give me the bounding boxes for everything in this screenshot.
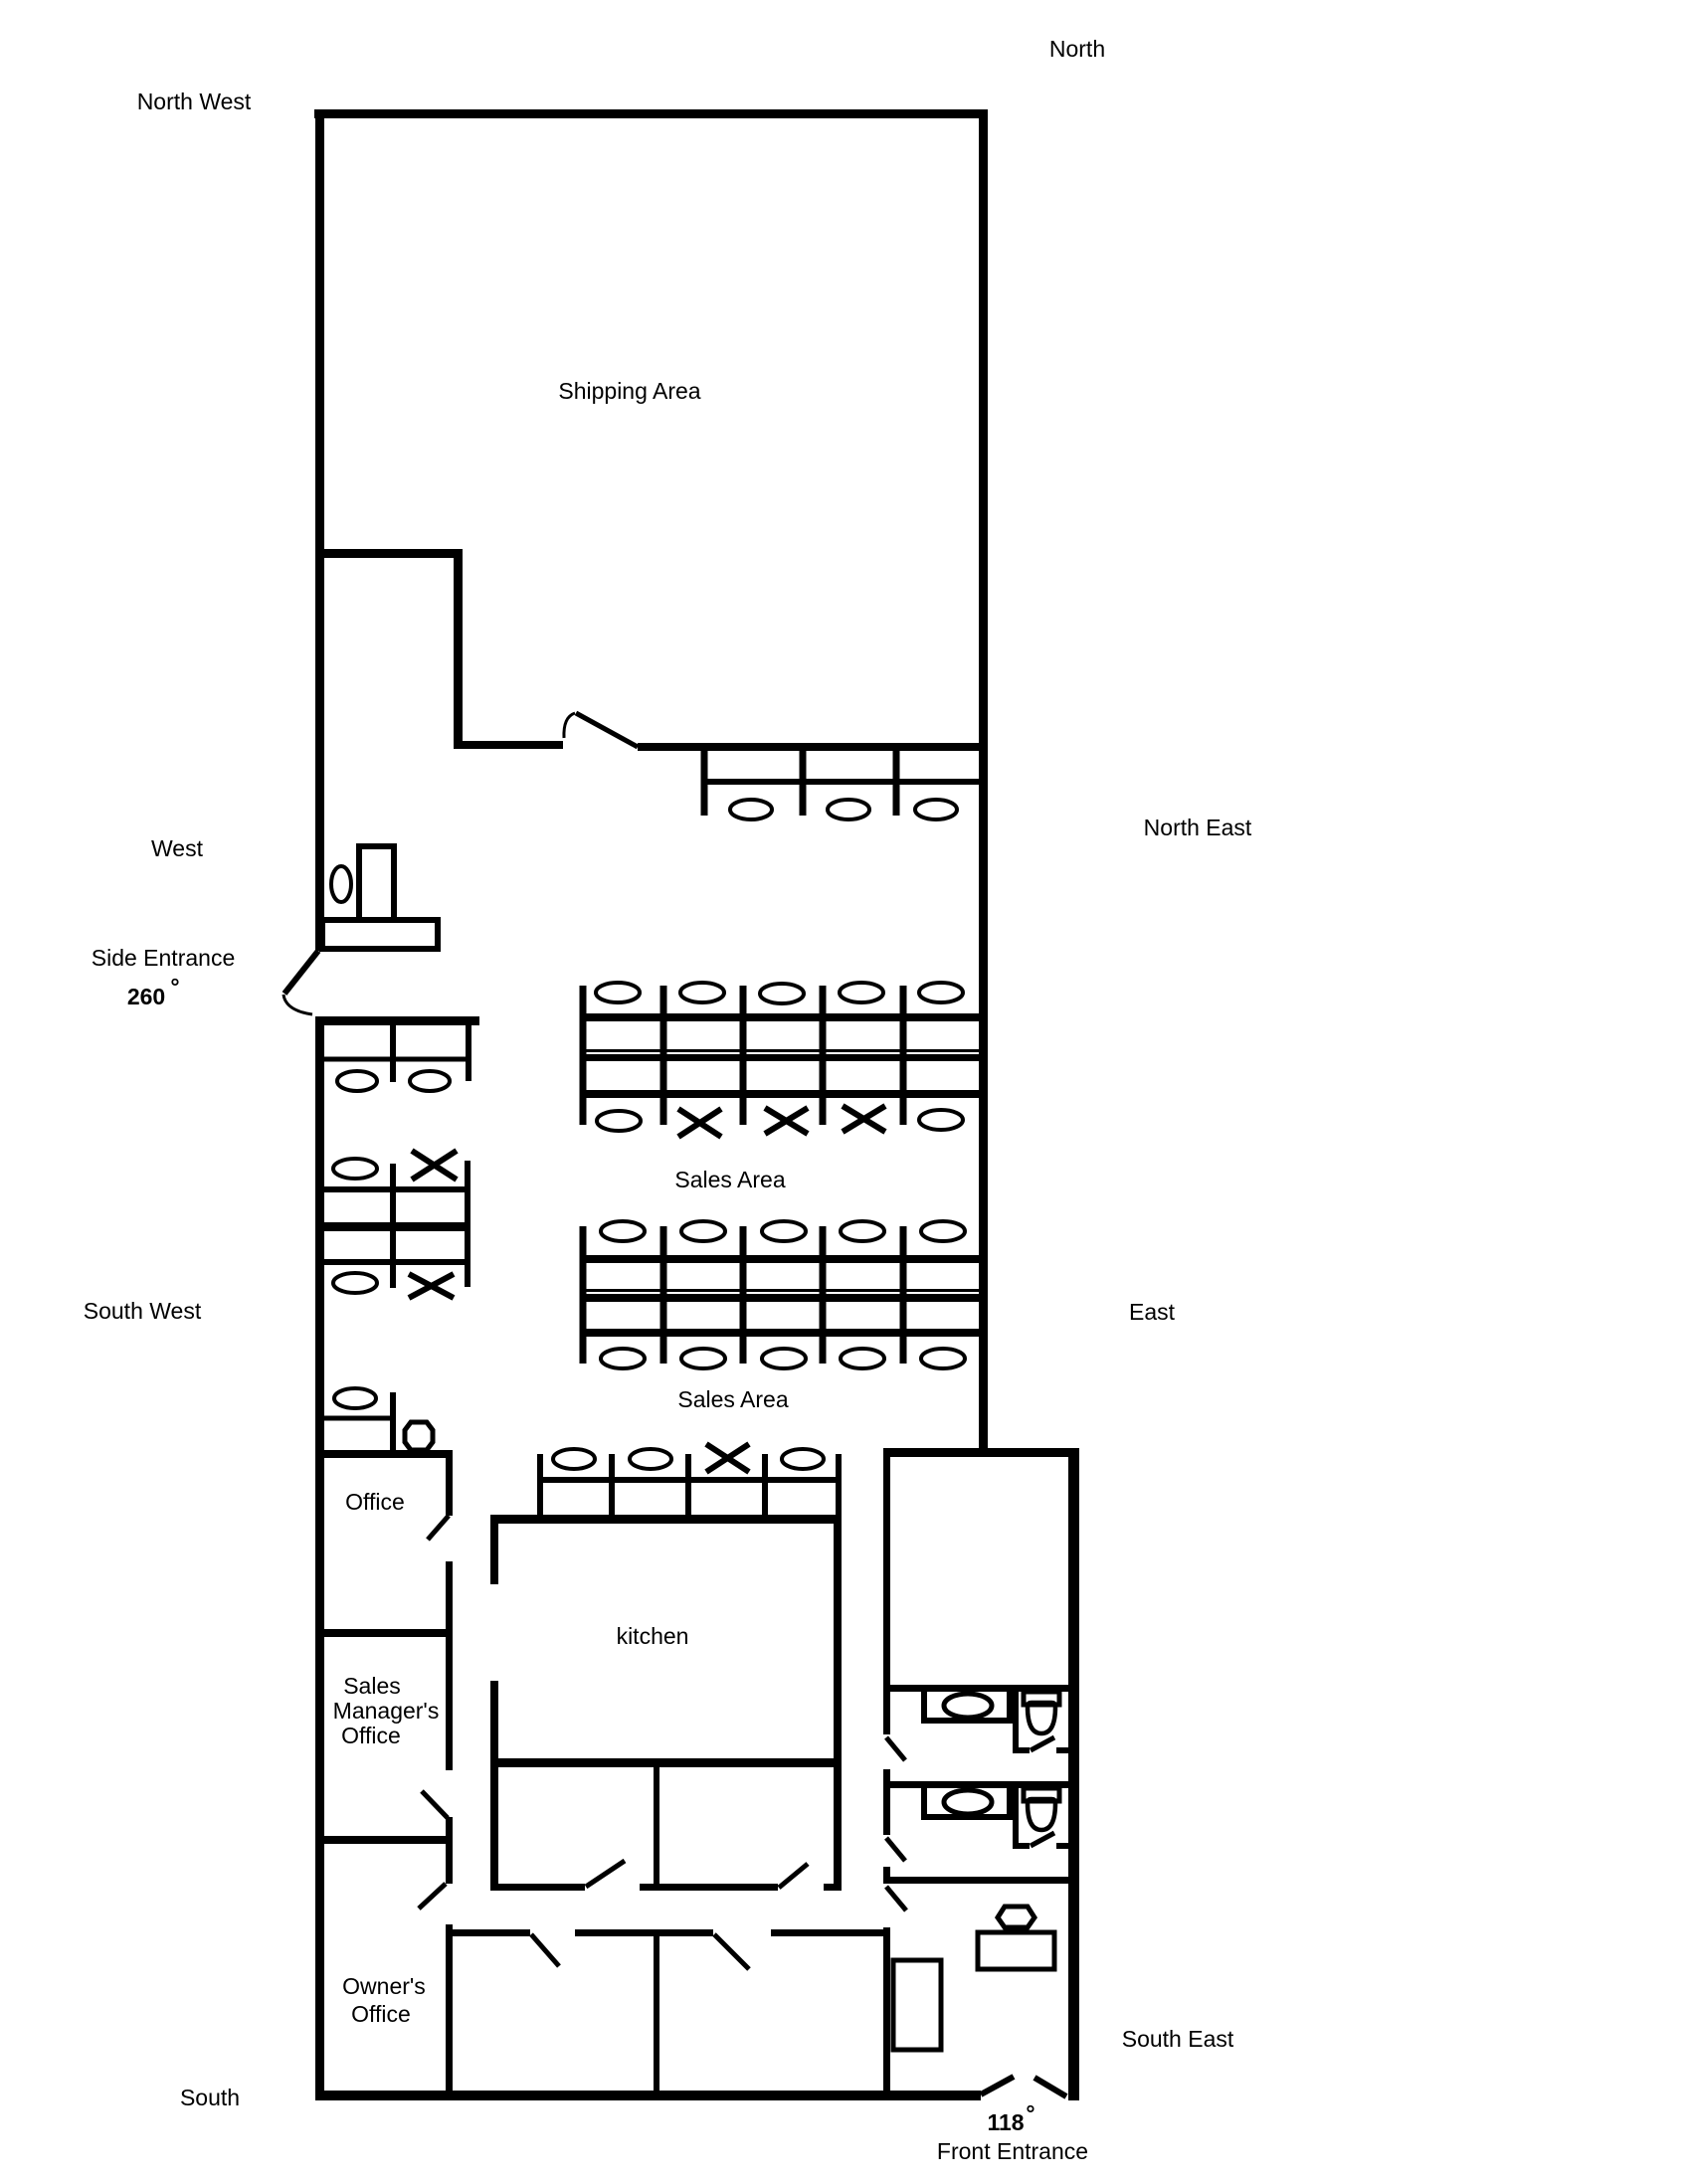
svg-text:°: ° <box>170 974 179 1000</box>
svg-text:Office: Office <box>345 1489 405 1515</box>
svg-text:Office: Office <box>341 1723 401 1748</box>
svg-text:Sales Area: Sales Area <box>674 1167 785 1192</box>
svg-text:Office: Office <box>351 2001 411 2027</box>
svg-text:Front Entrance: Front Entrance <box>937 2138 1088 2164</box>
svg-text:°: ° <box>1026 2100 1034 2126</box>
svg-text:North West: North West <box>137 89 252 114</box>
svg-text:Sales Area: Sales Area <box>677 1386 788 1412</box>
svg-text:North: North <box>1049 36 1105 62</box>
svg-text:North East: North East <box>1144 815 1252 840</box>
svg-text:South: South <box>180 2085 240 2110</box>
svg-text:260: 260 <box>127 984 165 1009</box>
svg-text:118: 118 <box>987 2109 1024 2135</box>
svg-text:Manager's: Manager's <box>333 1698 440 1724</box>
svg-text:Owner's: Owner's <box>342 1973 426 1999</box>
svg-text:East: East <box>1129 1299 1176 1325</box>
svg-text:kitchen: kitchen <box>617 1623 689 1649</box>
svg-text:West: West <box>151 835 204 861</box>
svg-text:Side Entrance: Side Entrance <box>92 945 235 971</box>
svg-text:Sales: Sales <box>343 1673 401 1699</box>
svg-text:Shipping Area: Shipping Area <box>558 378 700 404</box>
svg-text:South West: South West <box>84 1298 202 1324</box>
svg-text:South East: South East <box>1122 2026 1234 2052</box>
